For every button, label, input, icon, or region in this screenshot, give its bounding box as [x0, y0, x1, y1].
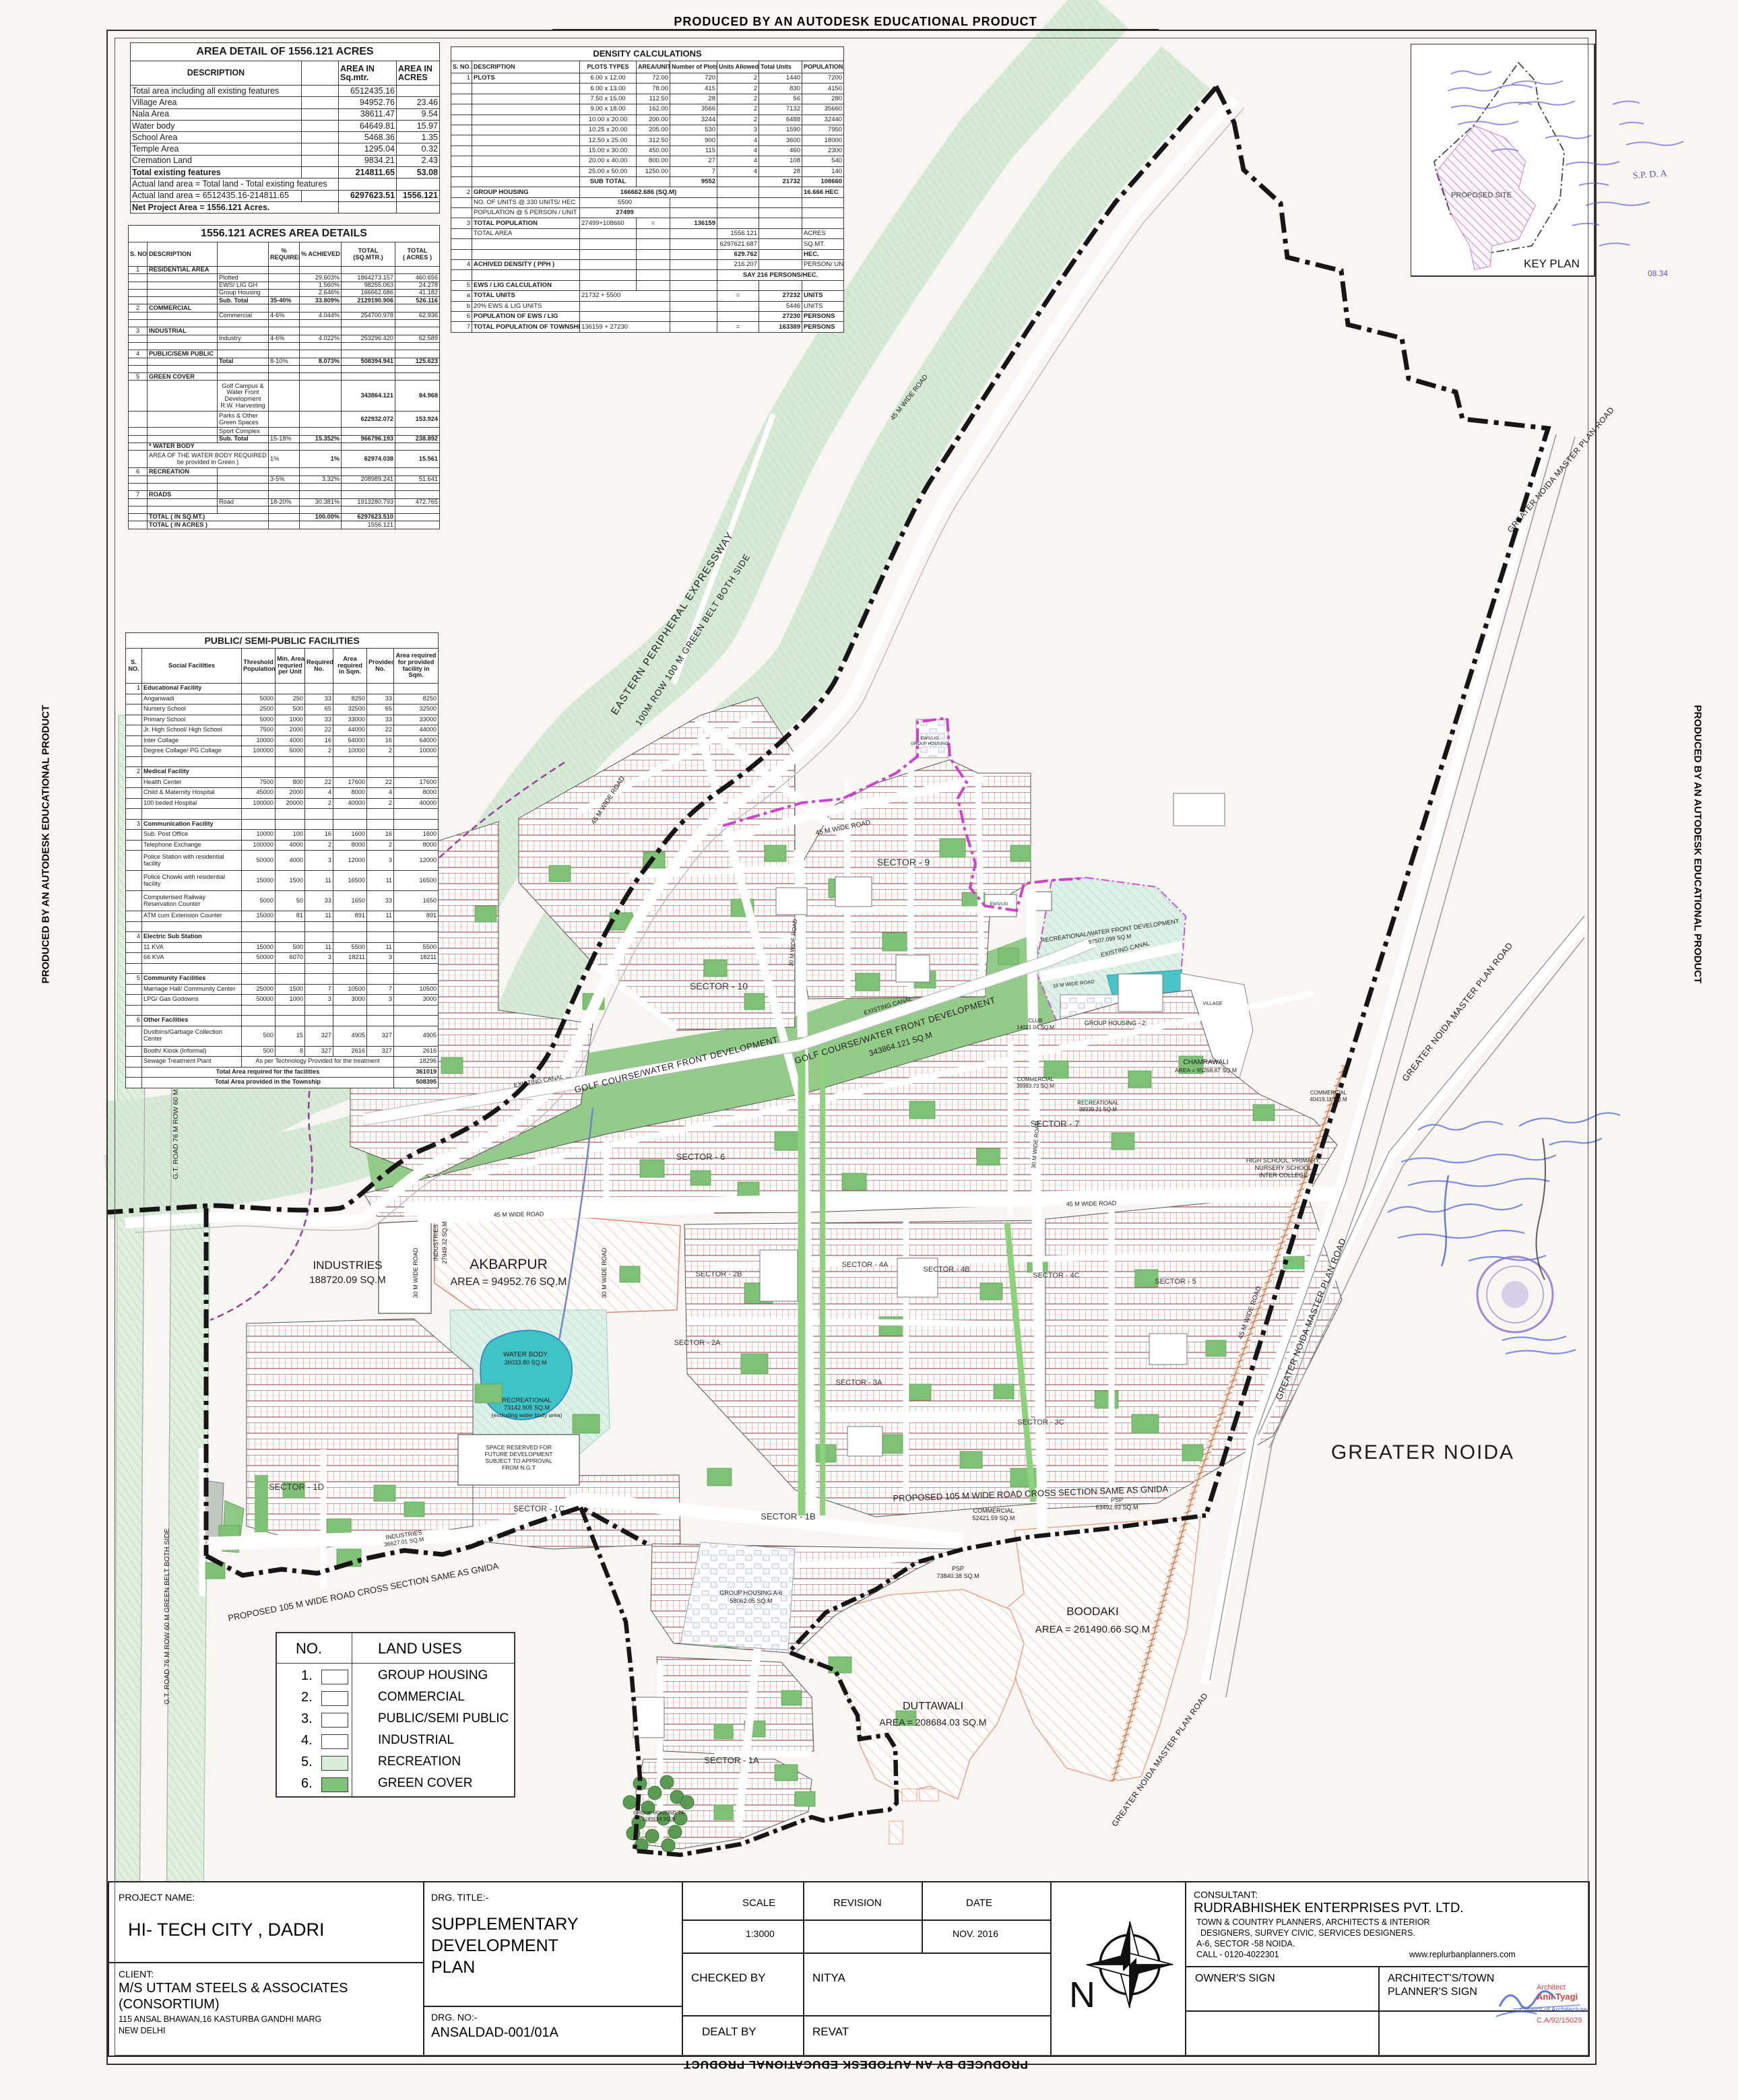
- svg-text:S.P. D. A: S.P. D. A: [1632, 168, 1668, 181]
- svg-text:08.34: 08.34: [1648, 269, 1668, 278]
